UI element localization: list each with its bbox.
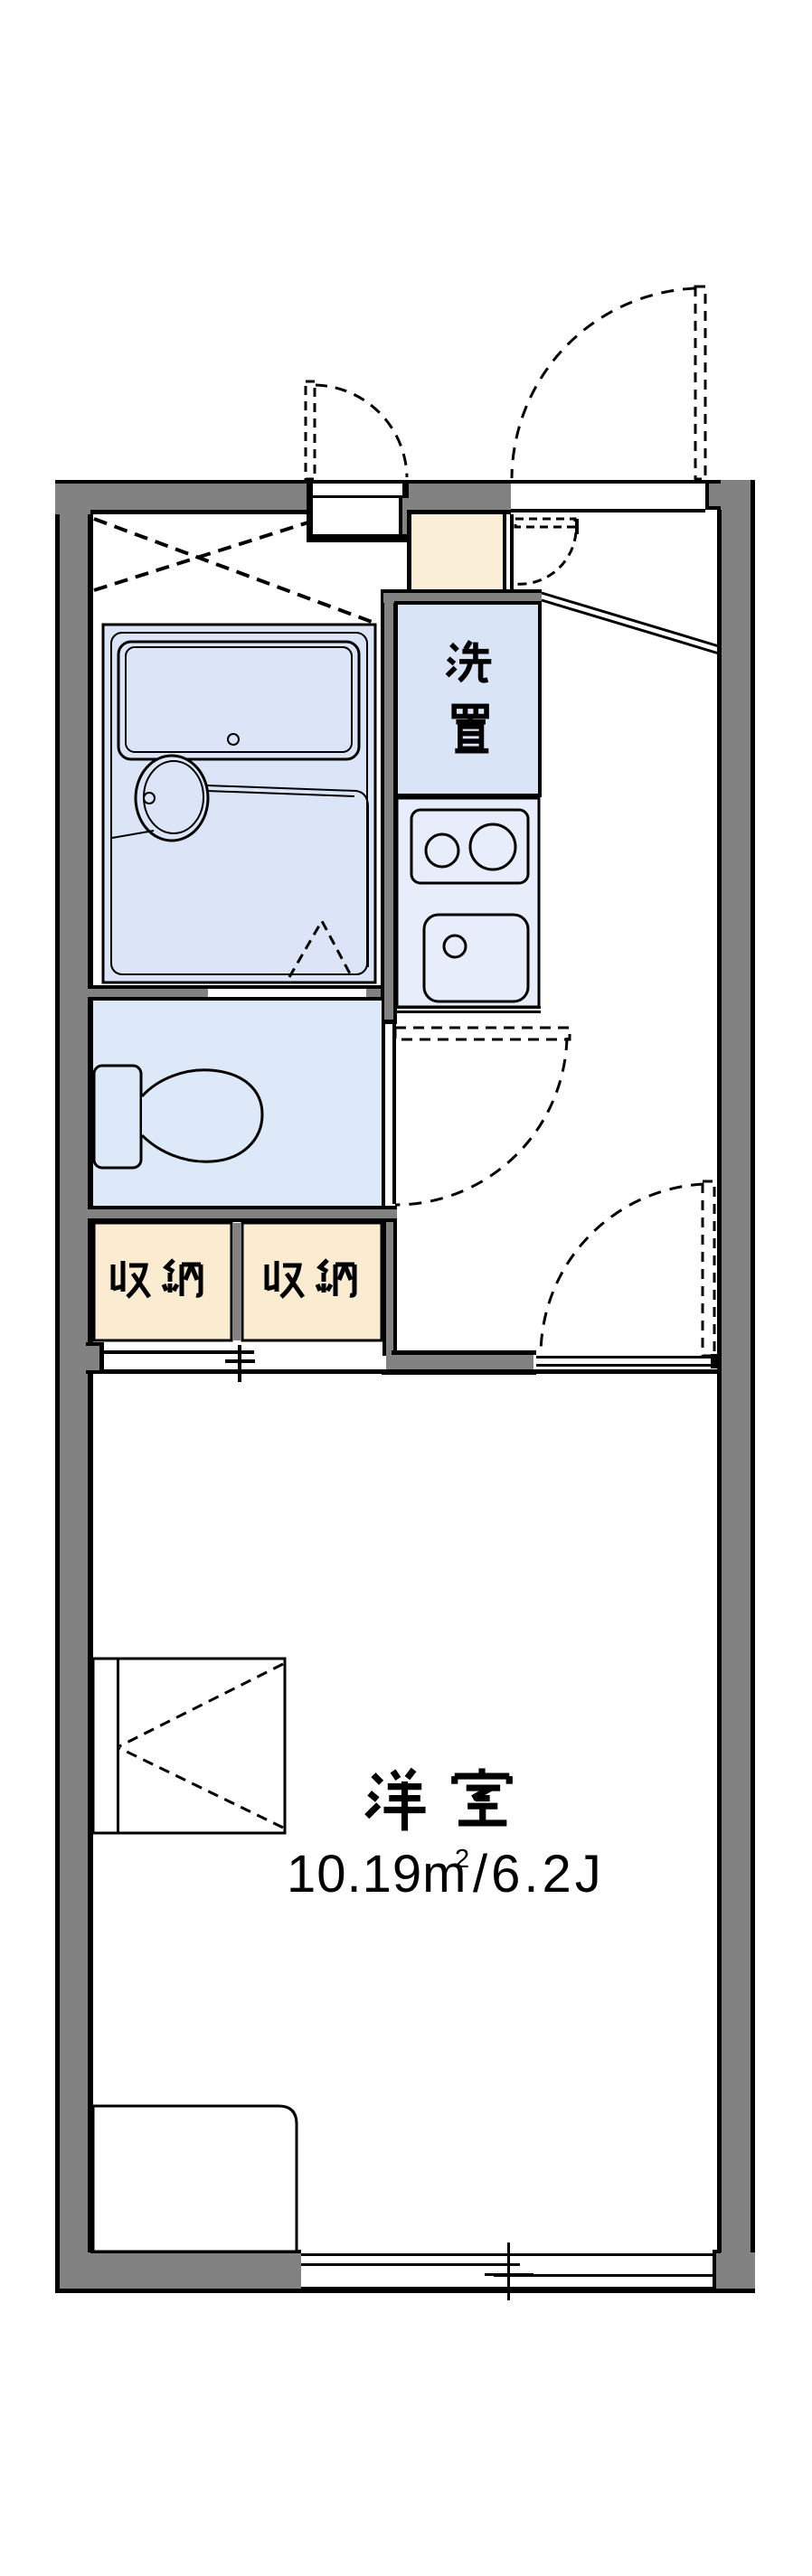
- svg-text:2: 2: [455, 1845, 469, 1874]
- svg-text:/6.2J: /6.2J: [473, 1845, 605, 1904]
- svg-text:10.19m: 10.19m: [287, 1845, 467, 1904]
